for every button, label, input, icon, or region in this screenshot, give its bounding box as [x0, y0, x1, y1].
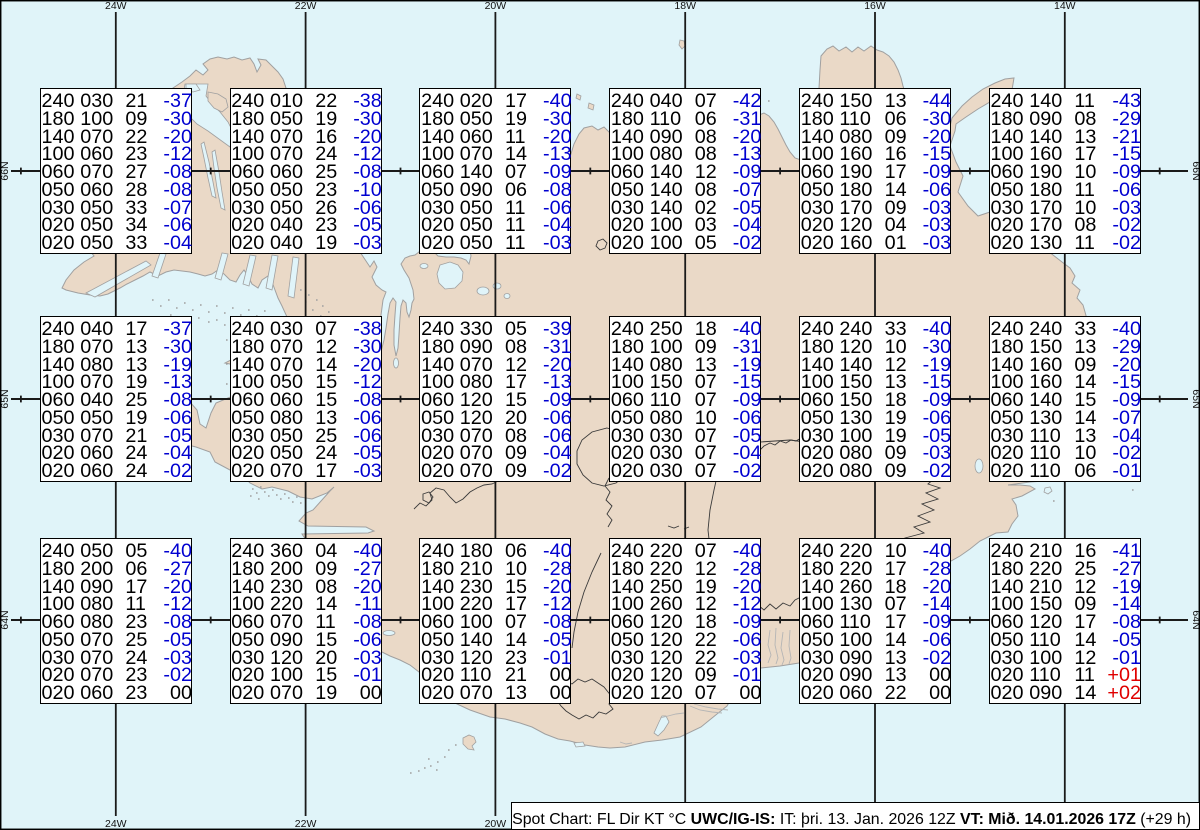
- svg-text:66N: 66N: [1190, 161, 1200, 180]
- svg-text:24W: 24W: [105, 0, 127, 12]
- svg-text:64N: 64N: [1190, 610, 1200, 629]
- svg-text:14W: 14W: [1054, 0, 1076, 12]
- svg-text:65N: 65N: [1190, 389, 1200, 408]
- svg-text:22W: 22W: [295, 0, 317, 12]
- svg-text:22W: 22W: [295, 818, 317, 830]
- svg-text:20W: 20W: [485, 0, 507, 12]
- svg-text:18W: 18W: [674, 0, 696, 12]
- svg-text:66N: 66N: [0, 161, 11, 180]
- svg-text:24W: 24W: [105, 818, 127, 830]
- svg-text:65N: 65N: [0, 389, 11, 408]
- svg-text:20W: 20W: [485, 818, 507, 830]
- svg-text:64N: 64N: [0, 610, 11, 629]
- svg-text:16W: 16W: [864, 0, 886, 12]
